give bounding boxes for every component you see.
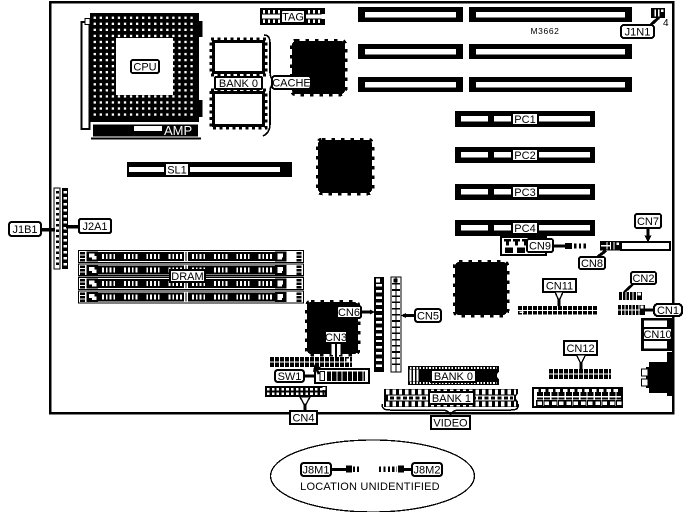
svg-text:PC3: PC3 <box>514 187 535 199</box>
svg-text:CN7: CN7 <box>637 216 659 228</box>
svg-text:J8M2: J8M2 <box>414 464 441 476</box>
svg-text:VIDEO: VIDEO <box>433 417 468 429</box>
svg-text:CN6: CN6 <box>338 307 360 319</box>
svg-text:CN8: CN8 <box>581 258 603 270</box>
svg-text:PC2: PC2 <box>514 150 535 162</box>
svg-text:PC1: PC1 <box>514 114 535 126</box>
svg-text:LOCATION UNIDENTIFIED: LOCATION UNIDENTIFIED <box>300 481 440 493</box>
svg-text:CPU: CPU <box>133 62 156 74</box>
svg-text:CN11: CN11 <box>546 280 573 292</box>
svg-text:CN10: CN10 <box>643 329 671 341</box>
svg-text:CN1: CN1 <box>657 305 679 317</box>
svg-text:BANK 1: BANK 1 <box>432 393 471 405</box>
svg-text:J1B1: J1B1 <box>12 224 37 236</box>
svg-text:SL1: SL1 <box>167 164 187 176</box>
svg-text:BANK 0: BANK 0 <box>434 371 473 383</box>
svg-text:CACHE: CACHE <box>272 78 311 90</box>
svg-text:PC4: PC4 <box>514 223 535 235</box>
svg-text:CN2: CN2 <box>632 273 654 285</box>
svg-text:TAG: TAG <box>282 12 304 24</box>
svg-text:CN12: CN12 <box>566 343 594 355</box>
svg-text:4: 4 <box>663 18 669 29</box>
svg-text:DRAM: DRAM <box>171 271 203 283</box>
svg-text:AMP: AMP <box>164 123 192 138</box>
svg-text:M3662: M3662 <box>531 26 560 36</box>
svg-text:J8M1: J8M1 <box>303 464 330 476</box>
svg-text:J2A1: J2A1 <box>82 221 107 233</box>
svg-text:CN3: CN3 <box>325 332 347 344</box>
svg-text:BANK 0: BANK 0 <box>219 78 258 90</box>
svg-text:CN4: CN4 <box>292 412 314 424</box>
svg-text:J1N1: J1N1 <box>625 26 651 38</box>
svg-text:CN9: CN9 <box>529 240 551 252</box>
svg-text:CN5: CN5 <box>417 310 439 322</box>
svg-text:SW1: SW1 <box>278 371 302 383</box>
